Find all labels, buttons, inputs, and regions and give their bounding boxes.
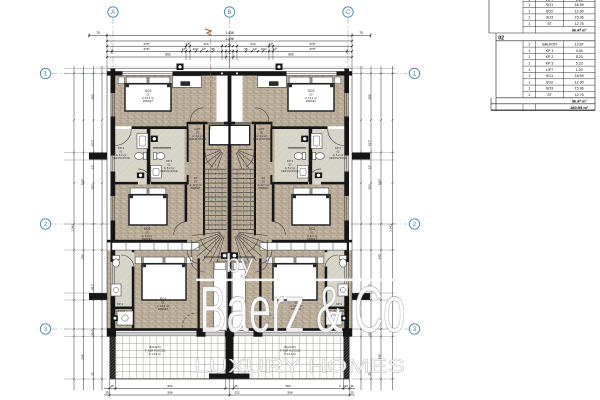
svg-text:A: 4,3 m²: A: 4,3 m²: [115, 309, 126, 313]
svg-text:C: C: [346, 10, 351, 16]
svg-text:SO1: SO1: [546, 3, 553, 7]
svg-text:5.23: 5.23: [576, 55, 583, 59]
svg-text:180.94 m²: 180.94 m²: [570, 105, 589, 110]
svg-text:102²: 102²: [192, 47, 198, 51]
svg-text:240: 240: [80, 354, 84, 359]
svg-text:1.20: 1.20: [576, 0, 583, 2]
svg-text:KP 3: KP 3: [546, 61, 554, 65]
svg-text:1.342: 1.342: [389, 224, 393, 232]
svg-text:KP 3: KP 3: [166, 159, 172, 163]
svg-text:281⁵: 281⁵: [90, 283, 94, 290]
svg-text:379⁵: 379⁵: [309, 42, 316, 46]
svg-text:417⁵: 417⁵: [90, 139, 94, 146]
svg-text:12⁵: 12⁵: [202, 47, 207, 51]
svg-text:02: 02: [498, 35, 504, 41]
svg-text:506: 506: [167, 391, 172, 395]
svg-text:A: 1,2 m²: A: 1,2 m²: [256, 134, 267, 138]
svg-text:A: A: [111, 10, 115, 16]
svg-text:12⁵: 12⁵: [269, 42, 274, 46]
svg-text:12⁵: 12⁵: [273, 47, 278, 51]
svg-text:13.87: 13.87: [575, 42, 584, 46]
svg-text:A: 12,7 m²: A: 12,7 m²: [190, 183, 202, 187]
svg-text:PARKET: PARKET: [142, 237, 153, 241]
svg-text:PARKET: PARKET: [158, 307, 169, 311]
svg-text:1: 1: [528, 42, 530, 46]
svg-text:1: 1: [528, 9, 530, 13]
svg-text:ST: ST: [547, 93, 552, 97]
svg-text:203: 203: [368, 184, 372, 189]
svg-text:1.342: 1.342: [70, 224, 74, 232]
svg-text:KP 2: KP 2: [118, 146, 124, 150]
svg-text:KP 1: KP 1: [546, 49, 554, 53]
svg-text:4.34: 4.34: [576, 49, 583, 53]
svg-text:212: 212: [234, 391, 239, 395]
svg-text:12.90: 12.90: [575, 80, 584, 84]
svg-text:1.296: 1.296: [225, 37, 234, 41]
svg-text:490: 490: [285, 384, 290, 388]
svg-text:1: 1: [528, 3, 530, 7]
svg-text:SO3: SO3: [546, 87, 553, 91]
svg-text:36: 36: [110, 384, 114, 388]
svg-text:PARKET: PARKET: [143, 99, 154, 103]
svg-text:102²: 102²: [260, 47, 266, 51]
svg-text:SO1: SO1: [160, 297, 167, 301]
svg-text:P: 13,9 m²: P: 13,9 m²: [284, 352, 296, 356]
svg-text:210: 210: [250, 42, 255, 46]
svg-text:12⁵: 12⁵: [253, 47, 258, 51]
svg-text:1.436: 1.436: [225, 31, 234, 35]
svg-text:1: 1: [528, 61, 530, 65]
svg-text:95: 95: [211, 47, 215, 51]
svg-text:LUXURY HOMES: LUXURY HOMES: [194, 357, 405, 378]
svg-text:518⁵: 518⁵: [80, 178, 84, 185]
svg-text:18.99: 18.99: [575, 3, 584, 7]
svg-text:SO3: SO3: [546, 16, 553, 20]
svg-text:18.99: 18.99: [575, 74, 584, 78]
svg-text:364⁵: 364⁵: [90, 329, 94, 336]
svg-text:21⁵: 21⁵: [90, 164, 94, 169]
svg-text:70: 70: [359, 31, 363, 35]
svg-text:1: 1: [528, 93, 530, 97]
svg-text:602: 602: [167, 384, 172, 388]
svg-text:LIFT: LIFT: [195, 127, 201, 131]
svg-text:12⁵: 12⁵: [182, 47, 187, 51]
svg-text:1.20: 1.20: [576, 68, 583, 72]
svg-text:ST: ST: [194, 176, 198, 180]
svg-text:A: 9,3 m²: A: 9,3 m²: [142, 234, 153, 238]
svg-text:1: 1: [528, 22, 530, 26]
svg-text:A: 5,2 m²: A: 5,2 m²: [116, 153, 127, 157]
svg-text:ST: ST: [547, 22, 552, 26]
svg-text:506: 506: [287, 391, 292, 395]
svg-text:280: 280: [90, 94, 94, 99]
svg-text:PARKET: PARKET: [306, 99, 317, 103]
svg-text:25: 25: [234, 384, 238, 388]
svg-text:A: 5,2 m²: A: 5,2 m²: [285, 166, 296, 170]
svg-text:25: 25: [90, 372, 94, 376]
svg-text:A: 15,2 m²: A: 15,2 m²: [305, 96, 317, 100]
svg-text:280: 280: [368, 94, 372, 99]
svg-text:1: 1: [528, 74, 530, 78]
svg-text:A: 5,2 m²: A: 5,2 m²: [164, 166, 175, 170]
svg-text:A: 16,5 m²: A: 16,5 m²: [157, 304, 169, 308]
svg-text:15.96: 15.96: [575, 16, 584, 20]
svg-text:203: 203: [90, 184, 94, 189]
svg-text:1: 1: [528, 68, 530, 72]
svg-text:A: 12,7 m²: A: 12,7 m²: [258, 183, 270, 187]
svg-text:KP 3: KP 3: [287, 159, 293, 163]
svg-text:BALKON: BALKON: [149, 345, 160, 349]
svg-text:340: 340: [378, 254, 382, 259]
svg-text:P: 13,9 m²: P: 13,9 m²: [149, 352, 161, 356]
svg-text:A: 9,3 m²: A: 9,3 m²: [307, 234, 318, 238]
svg-text:602: 602: [288, 53, 294, 57]
svg-text:12.75: 12.75: [575, 93, 584, 97]
svg-text:110: 110: [343, 384, 348, 388]
svg-text:ST: ST: [262, 176, 266, 180]
svg-text:379⁵: 379⁵: [143, 47, 150, 51]
svg-text:379⁵: 379⁵: [143, 42, 150, 46]
svg-text:96.47 m²: 96.47 m²: [572, 29, 588, 33]
svg-text:SO2: SO2: [546, 80, 553, 84]
svg-text:36: 36: [350, 384, 354, 388]
svg-text:70: 70: [96, 31, 100, 35]
svg-text:PARKET: PARKET: [258, 186, 269, 190]
svg-text:96.47 m²: 96.47 m²: [572, 100, 588, 104]
svg-text:1: 1: [528, 80, 530, 84]
svg-text:518⁵: 518⁵: [378, 178, 382, 185]
svg-text:BALKON: BALKON: [542, 42, 557, 46]
svg-text:A: 1,2 m²: A: 1,2 m²: [192, 134, 203, 138]
svg-text:12.75: 12.75: [575, 22, 584, 26]
svg-text:21⁵: 21⁵: [368, 164, 372, 169]
svg-text:25: 25: [105, 391, 109, 395]
svg-text:12⁵: 12⁵: [186, 42, 191, 46]
svg-text:15.96: 15.96: [575, 87, 584, 91]
svg-text:B: B: [227, 10, 231, 16]
svg-text:KP 2: KP 2: [335, 146, 341, 150]
svg-text:SO2: SO2: [309, 227, 316, 231]
svg-text:12.90: 12.90: [575, 9, 584, 13]
svg-text:25: 25: [350, 391, 354, 395]
svg-text:5.23: 5.23: [576, 61, 583, 65]
svg-text:SO1: SO1: [546, 74, 553, 78]
svg-text:KP 1: KP 1: [117, 302, 123, 306]
svg-text:PARKET: PARKET: [190, 186, 201, 190]
svg-text:A: 5,2 m²: A: 5,2 m²: [333, 153, 344, 157]
svg-text:1: 1: [528, 55, 530, 59]
svg-text:SO3: SO3: [145, 89, 152, 93]
svg-text:1: 1: [528, 16, 530, 20]
svg-text:1: 1: [528, 87, 530, 91]
svg-text:1: 1: [528, 49, 530, 53]
svg-text:95: 95: [244, 47, 248, 51]
svg-text:417⁵: 417⁵: [368, 139, 372, 146]
svg-text:602: 602: [165, 53, 171, 57]
svg-text:SO2: SO2: [144, 227, 151, 231]
svg-text:A: 15,2 m²: A: 15,2 m²: [142, 96, 154, 100]
svg-text:SO2: SO2: [546, 9, 553, 13]
svg-text:PARKET: PARKET: [307, 237, 318, 241]
svg-text:SO3: SO3: [308, 89, 315, 93]
svg-text:379⁵: 379⁵: [309, 47, 316, 51]
svg-text:LIFT: LIFT: [546, 68, 554, 72]
svg-text:1: 1: [528, 0, 530, 2]
svg-text:340: 340: [80, 254, 84, 259]
svg-text:LIFT: LIFT: [259, 127, 265, 131]
svg-text:KP 2: KP 2: [546, 55, 554, 59]
svg-text:210: 210: [203, 42, 208, 46]
svg-text:LIFT: LIFT: [546, 0, 554, 2]
svg-text:Baerz & Co: Baerz & Co: [200, 272, 406, 346]
